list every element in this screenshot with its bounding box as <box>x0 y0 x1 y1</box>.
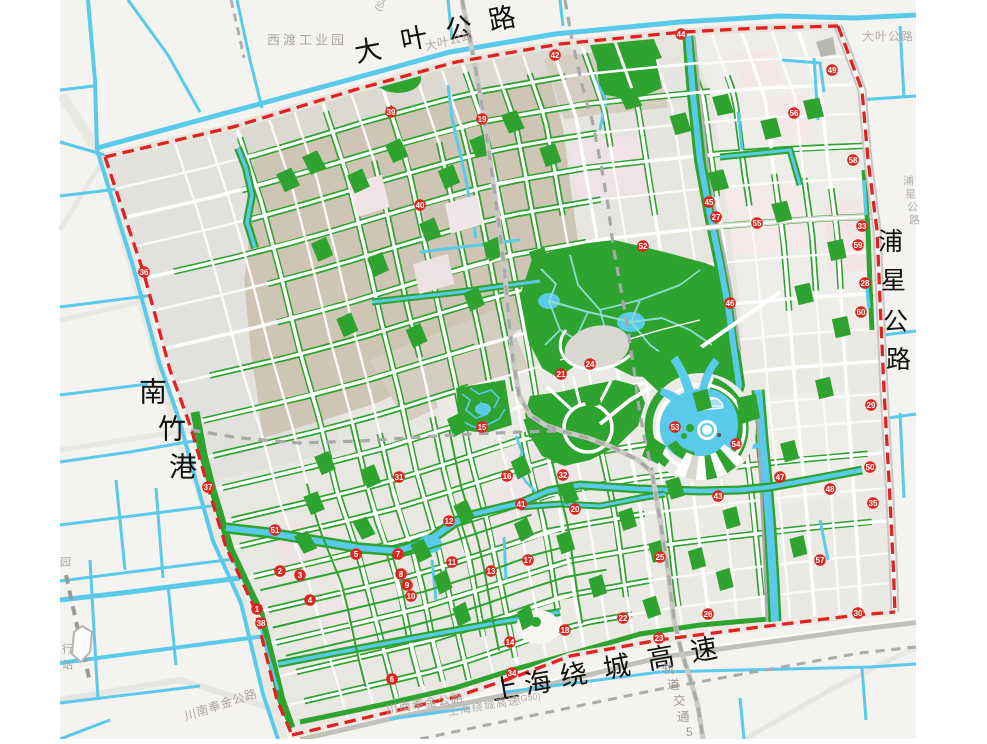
svg-text:1: 1 <box>255 605 260 614</box>
svg-text:20: 20 <box>571 505 580 514</box>
svg-text:44: 44 <box>677 30 686 39</box>
svg-text:32: 32 <box>559 471 568 480</box>
svg-text:49: 49 <box>828 66 837 75</box>
svg-text:36: 36 <box>140 268 149 277</box>
svg-text:33: 33 <box>858 222 867 231</box>
svg-text:12: 12 <box>445 517 454 526</box>
svg-text:54: 54 <box>732 440 741 449</box>
svg-text:7: 7 <box>396 550 401 559</box>
svg-text:50: 50 <box>866 463 875 472</box>
svg-text:46: 46 <box>726 299 735 308</box>
svg-text:5: 5 <box>686 725 693 739</box>
svg-text:21: 21 <box>557 370 566 379</box>
svg-text:26: 26 <box>704 610 713 619</box>
svg-text:10: 10 <box>407 592 416 601</box>
svg-text:4: 4 <box>308 596 313 605</box>
svg-text:29: 29 <box>867 401 876 410</box>
svg-text:40: 40 <box>416 201 425 210</box>
svg-text:31: 31 <box>395 473 404 482</box>
svg-text:14: 14 <box>506 638 515 647</box>
svg-text:18: 18 <box>561 626 570 635</box>
svg-text:43: 43 <box>714 492 723 501</box>
svg-text:42: 42 <box>551 51 560 60</box>
svg-text:25: 25 <box>656 553 665 562</box>
svg-text:47: 47 <box>776 473 785 482</box>
svg-text:53: 53 <box>671 423 680 432</box>
svg-text:60: 60 <box>857 308 866 317</box>
svg-text:16: 16 <box>503 472 512 481</box>
svg-text:37: 37 <box>204 483 213 492</box>
svg-text:22: 22 <box>619 614 628 623</box>
svg-text:28: 28 <box>861 279 870 288</box>
svg-text:48: 48 <box>826 485 835 494</box>
svg-text:45: 45 <box>705 198 714 207</box>
svg-text:3: 3 <box>298 571 303 580</box>
svg-text:23: 23 <box>655 634 664 643</box>
svg-text:30: 30 <box>854 609 863 618</box>
svg-text:5: 5 <box>354 550 359 559</box>
svg-text:24: 24 <box>586 360 595 369</box>
svg-text:51: 51 <box>271 526 280 535</box>
svg-text:19: 19 <box>478 115 487 124</box>
svg-text:9: 9 <box>405 581 410 590</box>
svg-text:15: 15 <box>478 423 487 432</box>
svg-text:2: 2 <box>278 567 283 576</box>
svg-text:6: 6 <box>390 675 395 684</box>
svg-text:35: 35 <box>869 499 878 508</box>
svg-text:57: 57 <box>816 556 825 565</box>
svg-text:59: 59 <box>854 241 863 250</box>
svg-text:34: 34 <box>508 669 517 678</box>
svg-text:27: 27 <box>712 213 721 222</box>
svg-text:41: 41 <box>517 500 526 509</box>
svg-text:55: 55 <box>753 219 762 228</box>
svg-text:56: 56 <box>790 109 799 118</box>
svg-text:38: 38 <box>257 619 266 628</box>
svg-text:39: 39 <box>387 108 396 117</box>
svg-text:11: 11 <box>448 558 457 567</box>
svg-text:17: 17 <box>524 556 533 565</box>
svg-text:52: 52 <box>639 242 648 251</box>
svg-text:13: 13 <box>487 567 496 576</box>
svg-text:58: 58 <box>849 156 858 165</box>
svg-text:8: 8 <box>399 570 404 579</box>
